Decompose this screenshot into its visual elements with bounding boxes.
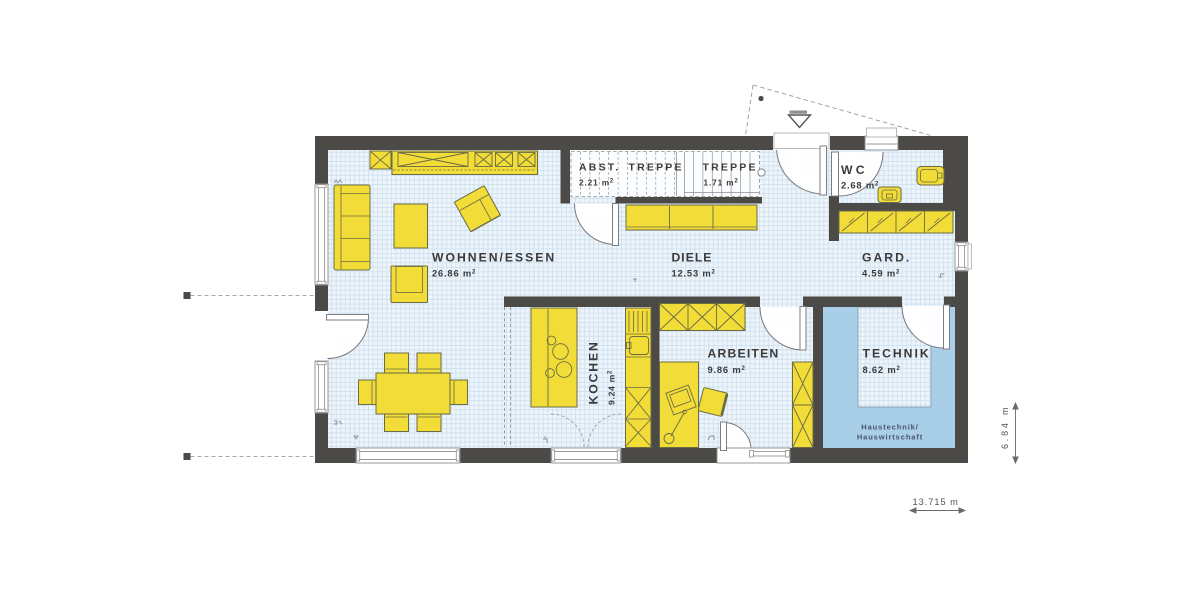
svg-text:9.24 m2: 9.24 m2 xyxy=(607,370,617,405)
svg-text:26.86 m2: 26.86 m2 xyxy=(432,268,476,279)
svg-text:ARBEITEN: ARBEITEN xyxy=(708,347,780,361)
svg-text:WC: WC xyxy=(841,163,868,177)
svg-text:1.71 m2: 1.71 m2 xyxy=(704,178,739,187)
svg-text:WOHNEN/ESSEN: WOHNEN/ESSEN xyxy=(432,251,556,265)
svg-text:12.53 m2: 12.53 m2 xyxy=(672,268,716,279)
svg-text:DIELE: DIELE xyxy=(672,251,713,265)
svg-text:2.68 m2: 2.68 m2 xyxy=(841,180,879,191)
svg-text:Hauswirtschaft: Hauswirtschaft xyxy=(857,433,923,442)
svg-text:TREPPE: TREPPE xyxy=(703,162,758,174)
svg-text:TECHNIK: TECHNIK xyxy=(863,347,931,361)
svg-text:4.59 m2: 4.59 m2 xyxy=(862,268,900,279)
svg-text:GARD.: GARD. xyxy=(862,251,911,265)
svg-text:2.21 m2: 2.21 m2 xyxy=(579,178,614,187)
svg-text:13.715 m: 13.715 m xyxy=(913,497,959,507)
svg-text:9.86 m2: 9.86 m2 xyxy=(708,364,746,375)
svg-text:8.62 m2: 8.62 m2 xyxy=(863,364,901,375)
svg-text:TREPPE: TREPPE xyxy=(629,162,684,174)
svg-text:6.84 m: 6.84 m xyxy=(1000,405,1010,449)
svg-text:ABST.: ABST. xyxy=(579,162,620,174)
svg-text:Haustechnik/: Haustechnik/ xyxy=(861,423,918,432)
svg-text:KOCHEN: KOCHEN xyxy=(587,340,601,404)
